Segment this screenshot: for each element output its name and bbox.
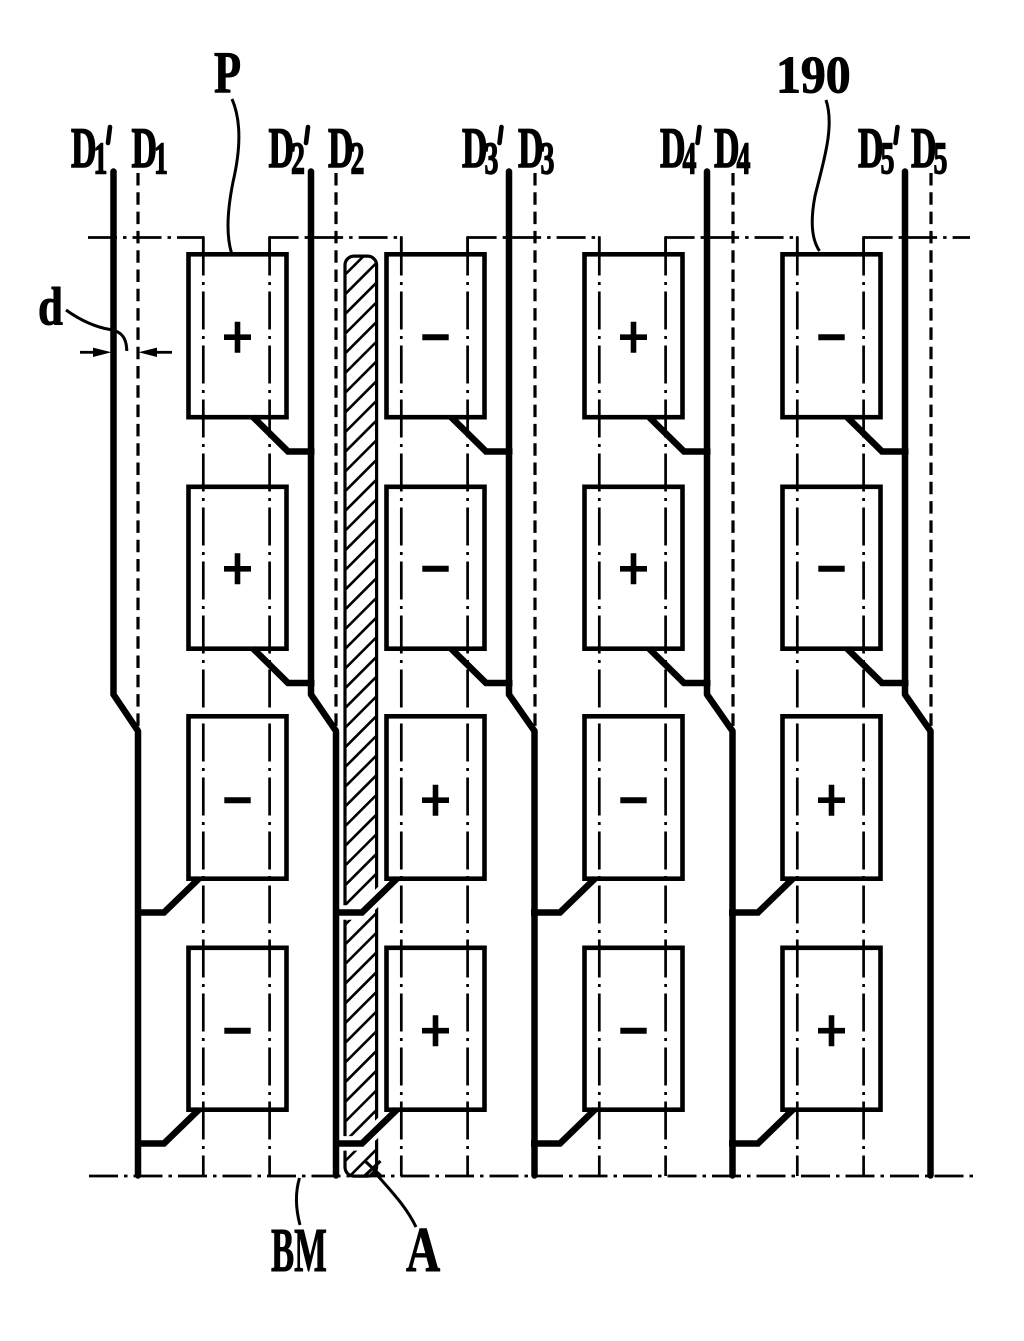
svg-text:D: D [71, 118, 97, 181]
svg-text:2: 2 [291, 135, 305, 184]
svg-text:D: D [462, 118, 488, 181]
svg-text:4: 4 [683, 135, 697, 184]
svg-text:BM: BM [271, 1215, 327, 1284]
svg-text:1: 1 [94, 135, 108, 184]
svg-text:d: d [38, 277, 63, 337]
svg-text:190: 190 [776, 46, 851, 105]
svg-text:D: D [911, 118, 937, 181]
svg-text:D: D [518, 118, 544, 181]
svg-text:1: 1 [154, 135, 168, 184]
svg-text:5: 5 [934, 135, 948, 184]
svg-text:D: D [328, 118, 354, 181]
svg-text:P: P [214, 42, 241, 106]
svg-text:D: D [660, 118, 686, 181]
svg-text:D: D [858, 118, 884, 181]
svg-text:D: D [132, 118, 158, 181]
svg-text:2: 2 [351, 135, 365, 184]
svg-text:D: D [269, 118, 295, 181]
svg-text:D: D [714, 118, 740, 181]
svg-text:A: A [406, 1215, 440, 1285]
svg-text:4: 4 [737, 135, 751, 184]
svg-text:3: 3 [541, 135, 555, 184]
svg-text:3: 3 [485, 135, 499, 184]
svg-text:5: 5 [881, 135, 895, 184]
